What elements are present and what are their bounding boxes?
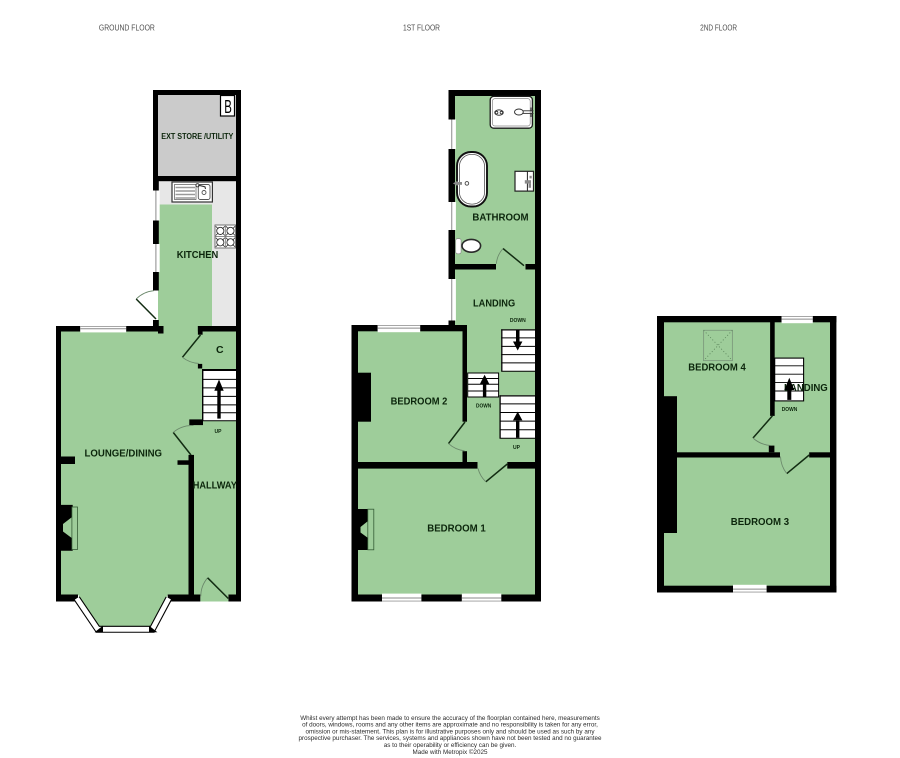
svg-text:LOUNGE/DINING: LOUNGE/DINING — [85, 449, 163, 460]
svg-text:1ST FLOOR: 1ST FLOOR — [403, 23, 440, 32]
svg-text:KITCHEN: KITCHEN — [177, 250, 219, 261]
svg-text:BEDROOM 2: BEDROOM 2 — [391, 396, 448, 407]
svg-text:BATHROOM: BATHROOM — [472, 212, 528, 223]
svg-text:2ND FLOOR: 2ND FLOOR — [700, 23, 737, 32]
svg-text:C: C — [216, 344, 224, 356]
svg-text:DOWN: DOWN — [476, 404, 491, 410]
svg-text:BEDROOM 3: BEDROOM 3 — [731, 517, 790, 528]
svg-text:DOWN: DOWN — [782, 407, 798, 413]
svg-text:BEDROOM 4: BEDROOM 4 — [688, 363, 746, 374]
svg-text:GROUND FLOOR: GROUND FLOOR — [99, 23, 155, 32]
svg-text:LANDING: LANDING — [473, 299, 515, 310]
svg-text:BEDROOM 1: BEDROOM 1 — [427, 523, 486, 534]
svg-text:B: B — [224, 96, 232, 117]
svg-text:HALLWAY: HALLWAY — [193, 481, 238, 492]
svg-text:UP: UP — [215, 429, 222, 435]
svg-text:EXT STORE /UTILITY: EXT STORE /UTILITY — [161, 132, 234, 141]
svg-text:UP: UP — [513, 445, 520, 451]
svg-text:DOWN: DOWN — [510, 318, 526, 324]
svg-text:Made with Metropix ©2025: Made with Metropix ©2025 — [413, 748, 488, 756]
